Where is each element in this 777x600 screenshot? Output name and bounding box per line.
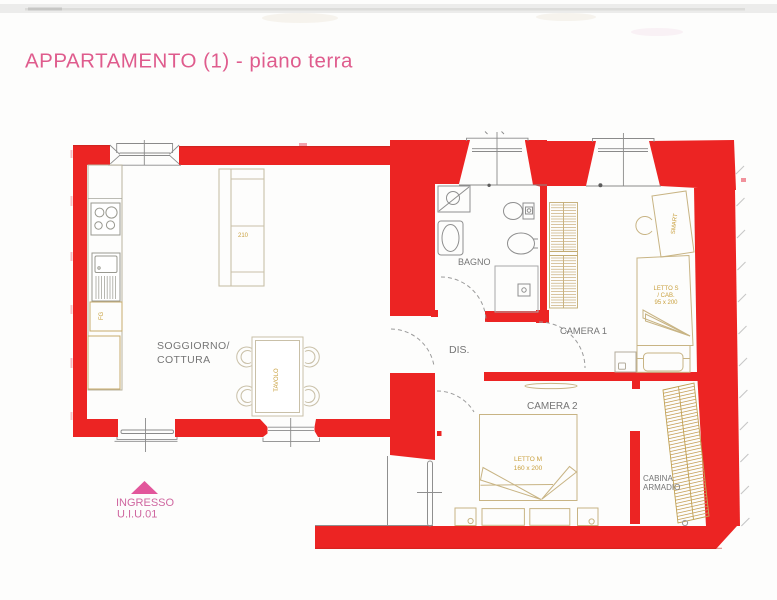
- svg-text:SOGGIORNO/: SOGGIORNO/: [157, 340, 230, 352]
- svg-text:LETTO M: LETTO M: [514, 456, 542, 463]
- svg-text:BAGNO: BAGNO: [458, 257, 491, 267]
- svg-text:U.I.U.01: U.I.U.01: [117, 509, 157, 521]
- svg-text:TAVOLO: TAVOLO: [274, 368, 280, 392]
- svg-text:ARMADIO: ARMADIO: [643, 483, 680, 492]
- svg-text:CAMERA 2: CAMERA 2: [527, 401, 578, 412]
- svg-text:210: 210: [238, 233, 249, 239]
- svg-text:DIS.: DIS.: [449, 344, 469, 356]
- svg-text:FG: FG: [99, 312, 105, 321]
- svg-text:160 x 200: 160 x 200: [514, 465, 543, 472]
- svg-text:95 x 200: 95 x 200: [654, 300, 678, 306]
- svg-text:COTTURA: COTTURA: [157, 354, 211, 366]
- svg-text:APPARTAMENTO (1) - piano terra: APPARTAMENTO (1) - piano terra: [25, 50, 353, 73]
- svg-text:LETTO S: LETTO S: [654, 286, 679, 292]
- svg-text:INGRESSO: INGRESSO: [116, 497, 175, 509]
- svg-text:CAMERA 1: CAMERA 1: [560, 326, 607, 336]
- svg-text:/ CAB.: / CAB.: [657, 293, 675, 299]
- svg-text:CABINA: CABINA: [643, 474, 673, 483]
